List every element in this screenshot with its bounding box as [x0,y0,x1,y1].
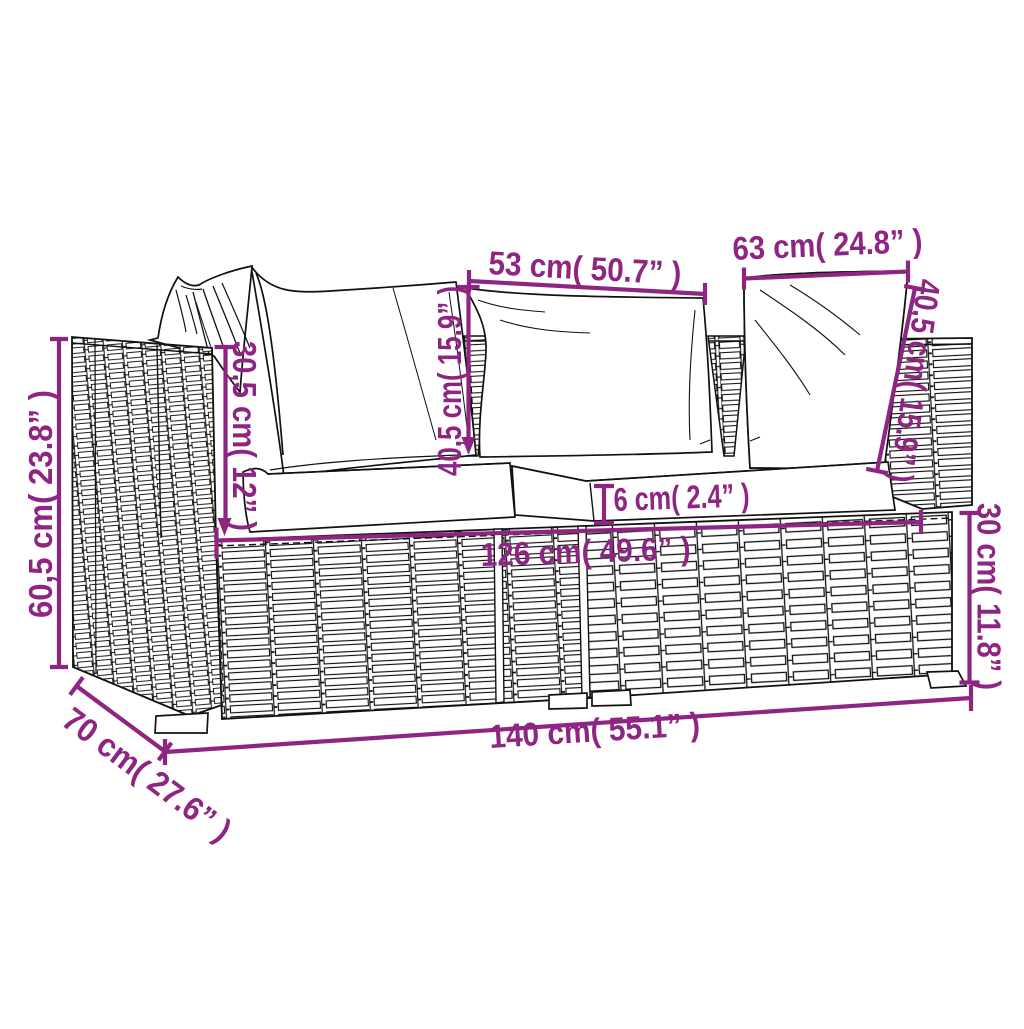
svg-text:60,5 cm( 23.8” ): 60,5 cm( 23.8” ) [22,390,59,618]
svg-text:30,5 cm( 12” ): 30,5 cm( 12” ) [226,341,263,531]
svg-text:6 cm( 2.4” ): 6 cm( 2.4” ) [613,476,750,518]
svg-text:40,5 cm( 15.9” ): 40,5 cm( 15.9” ) [431,286,468,476]
svg-text:30 cm( 11.8” ): 30 cm( 11.8” ) [971,503,1008,690]
svg-text:126 cm( 49.6” ): 126 cm( 49.6” ) [480,529,691,573]
